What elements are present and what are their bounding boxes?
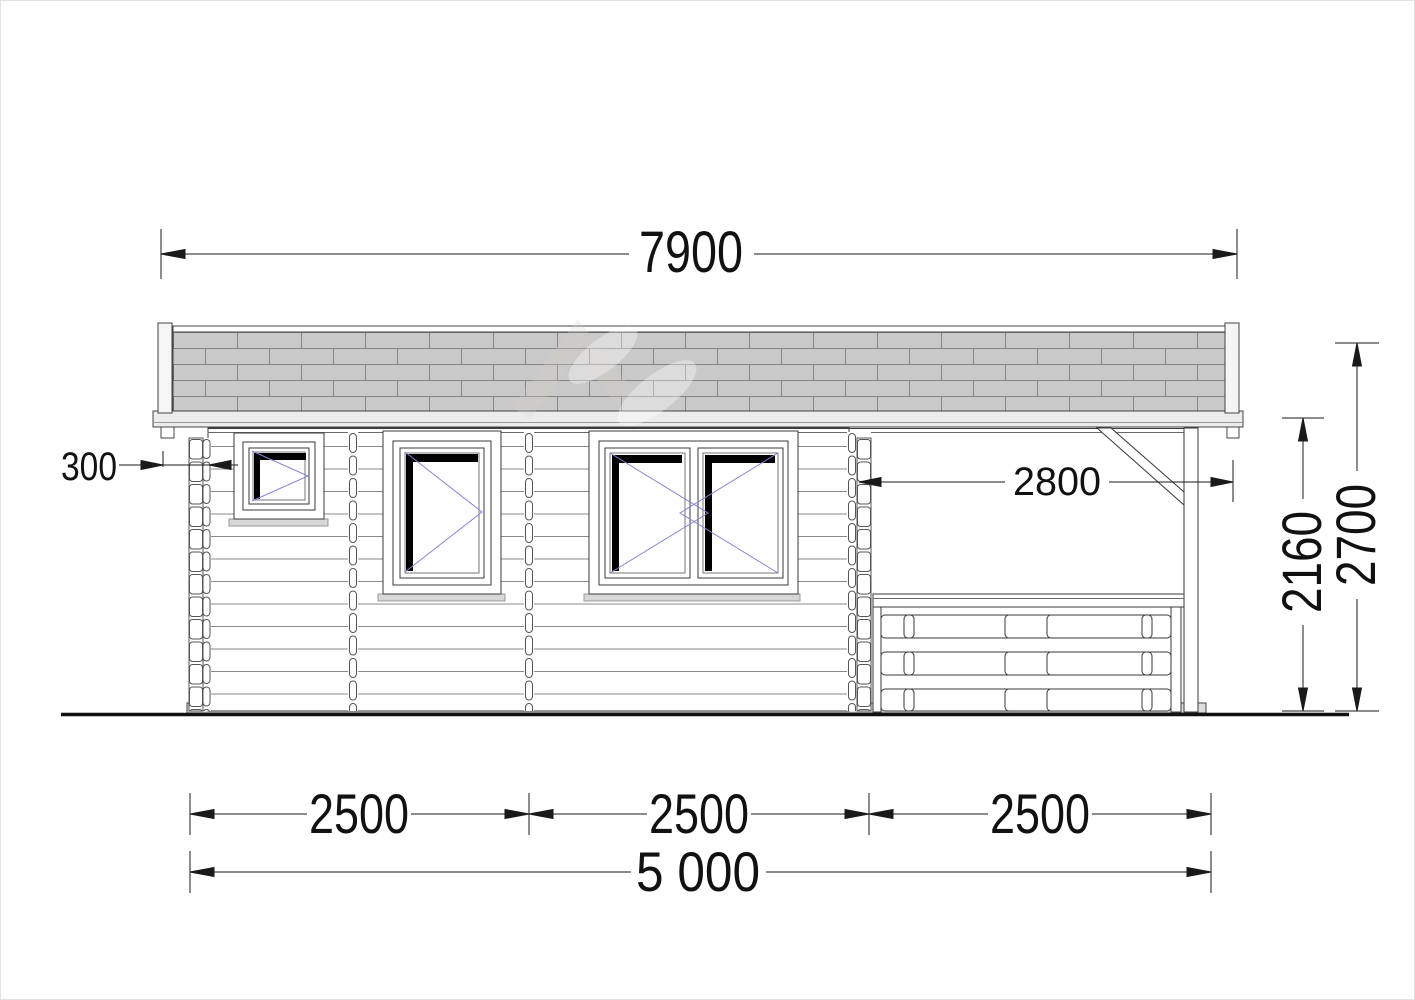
eave-return-right [1227,427,1239,438]
porch-post [1184,428,1198,712]
dim-left-overhang-label: 300 [61,445,117,489]
elevation-drawing-page: 7900 300 2800 2160 [0,0,1415,1000]
dim-total-height: 2700 [1324,343,1387,711]
dim-bays: 2500 2500 2500 [190,782,1211,845]
window-sill [378,594,505,601]
porch-railing [873,594,1184,712]
dim-base-width: 5 000 [190,840,1211,903]
dim-base-width-label: 5 000 [636,840,760,903]
window-small [229,433,328,526]
railing-boards [881,615,1171,711]
corner-log-ends-right [847,432,871,711]
dim-total-width-label: 7900 [639,220,743,285]
window-double [584,431,800,601]
dim-bay1-label: 2500 [309,782,409,845]
dim-total-height-label: 2700 [1324,484,1387,586]
window-sill [229,519,328,526]
window-sill [584,594,800,601]
dim-total-width: 7900 [161,220,1237,285]
log-joint-chain-2 [524,432,534,711]
elevation-drawing: 7900 300 2800 2160 [1,1,1415,1000]
barge-board-right [1225,323,1239,413]
roof-fascia [153,411,1243,427]
roof-brace [1097,428,1184,505]
dim-bay3-label: 2500 [990,782,1090,845]
roof [153,317,1243,438]
dim-bay2-label: 2500 [649,782,749,845]
corner-log-ends-left [189,438,211,711]
eave-return-left [161,427,174,438]
window-single [378,431,505,601]
barge-board-left [158,323,172,413]
dim-porch-width-label: 2800 [1013,460,1101,504]
log-joint-chain-1 [348,432,358,711]
